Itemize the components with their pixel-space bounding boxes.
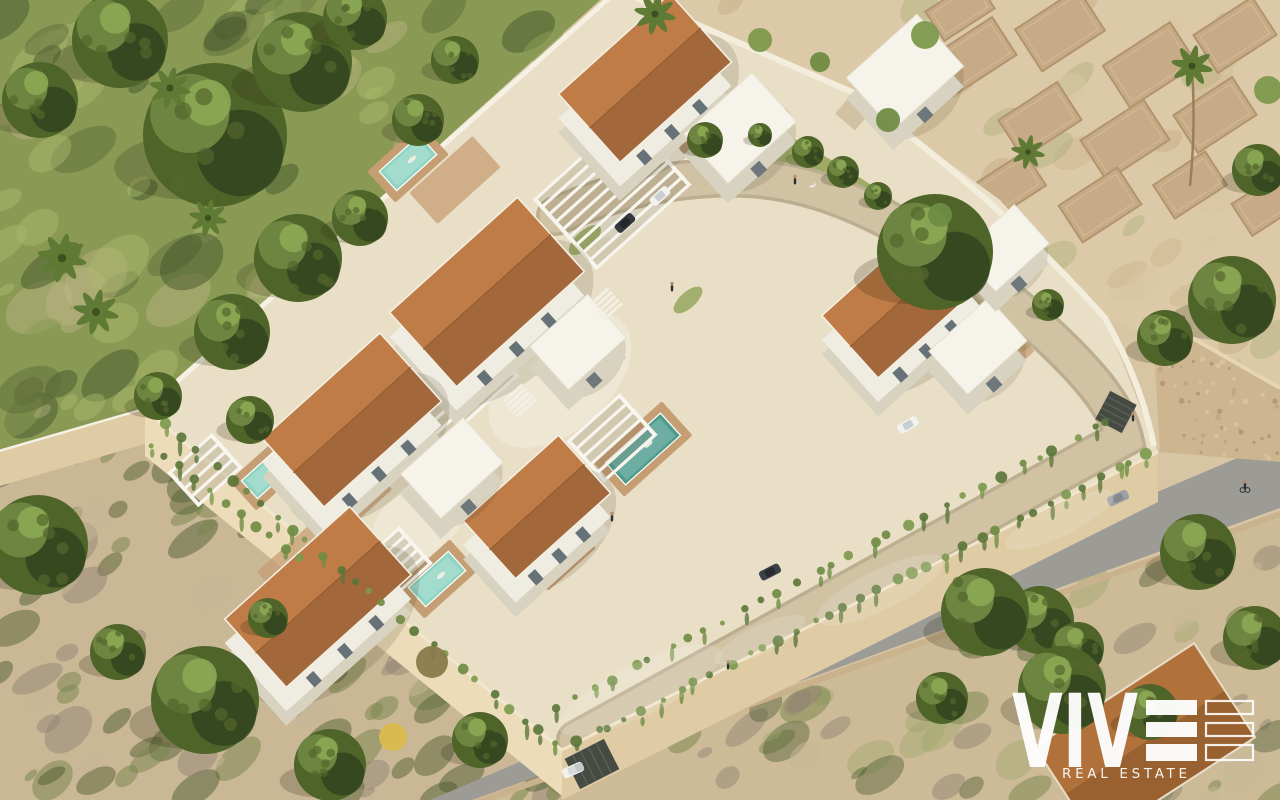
person <box>670 282 673 292</box>
person <box>1131 412 1134 422</box>
logo-tagline: REAL ESTATE <box>1062 766 1193 782</box>
site-render-svg: VIV REAL ESTATE <box>0 0 1280 800</box>
person <box>793 175 796 185</box>
person <box>610 512 613 522</box>
logo-e-bars-icon <box>1146 700 1197 761</box>
aerial-render-image: VIV REAL ESTATE <box>0 0 1280 800</box>
